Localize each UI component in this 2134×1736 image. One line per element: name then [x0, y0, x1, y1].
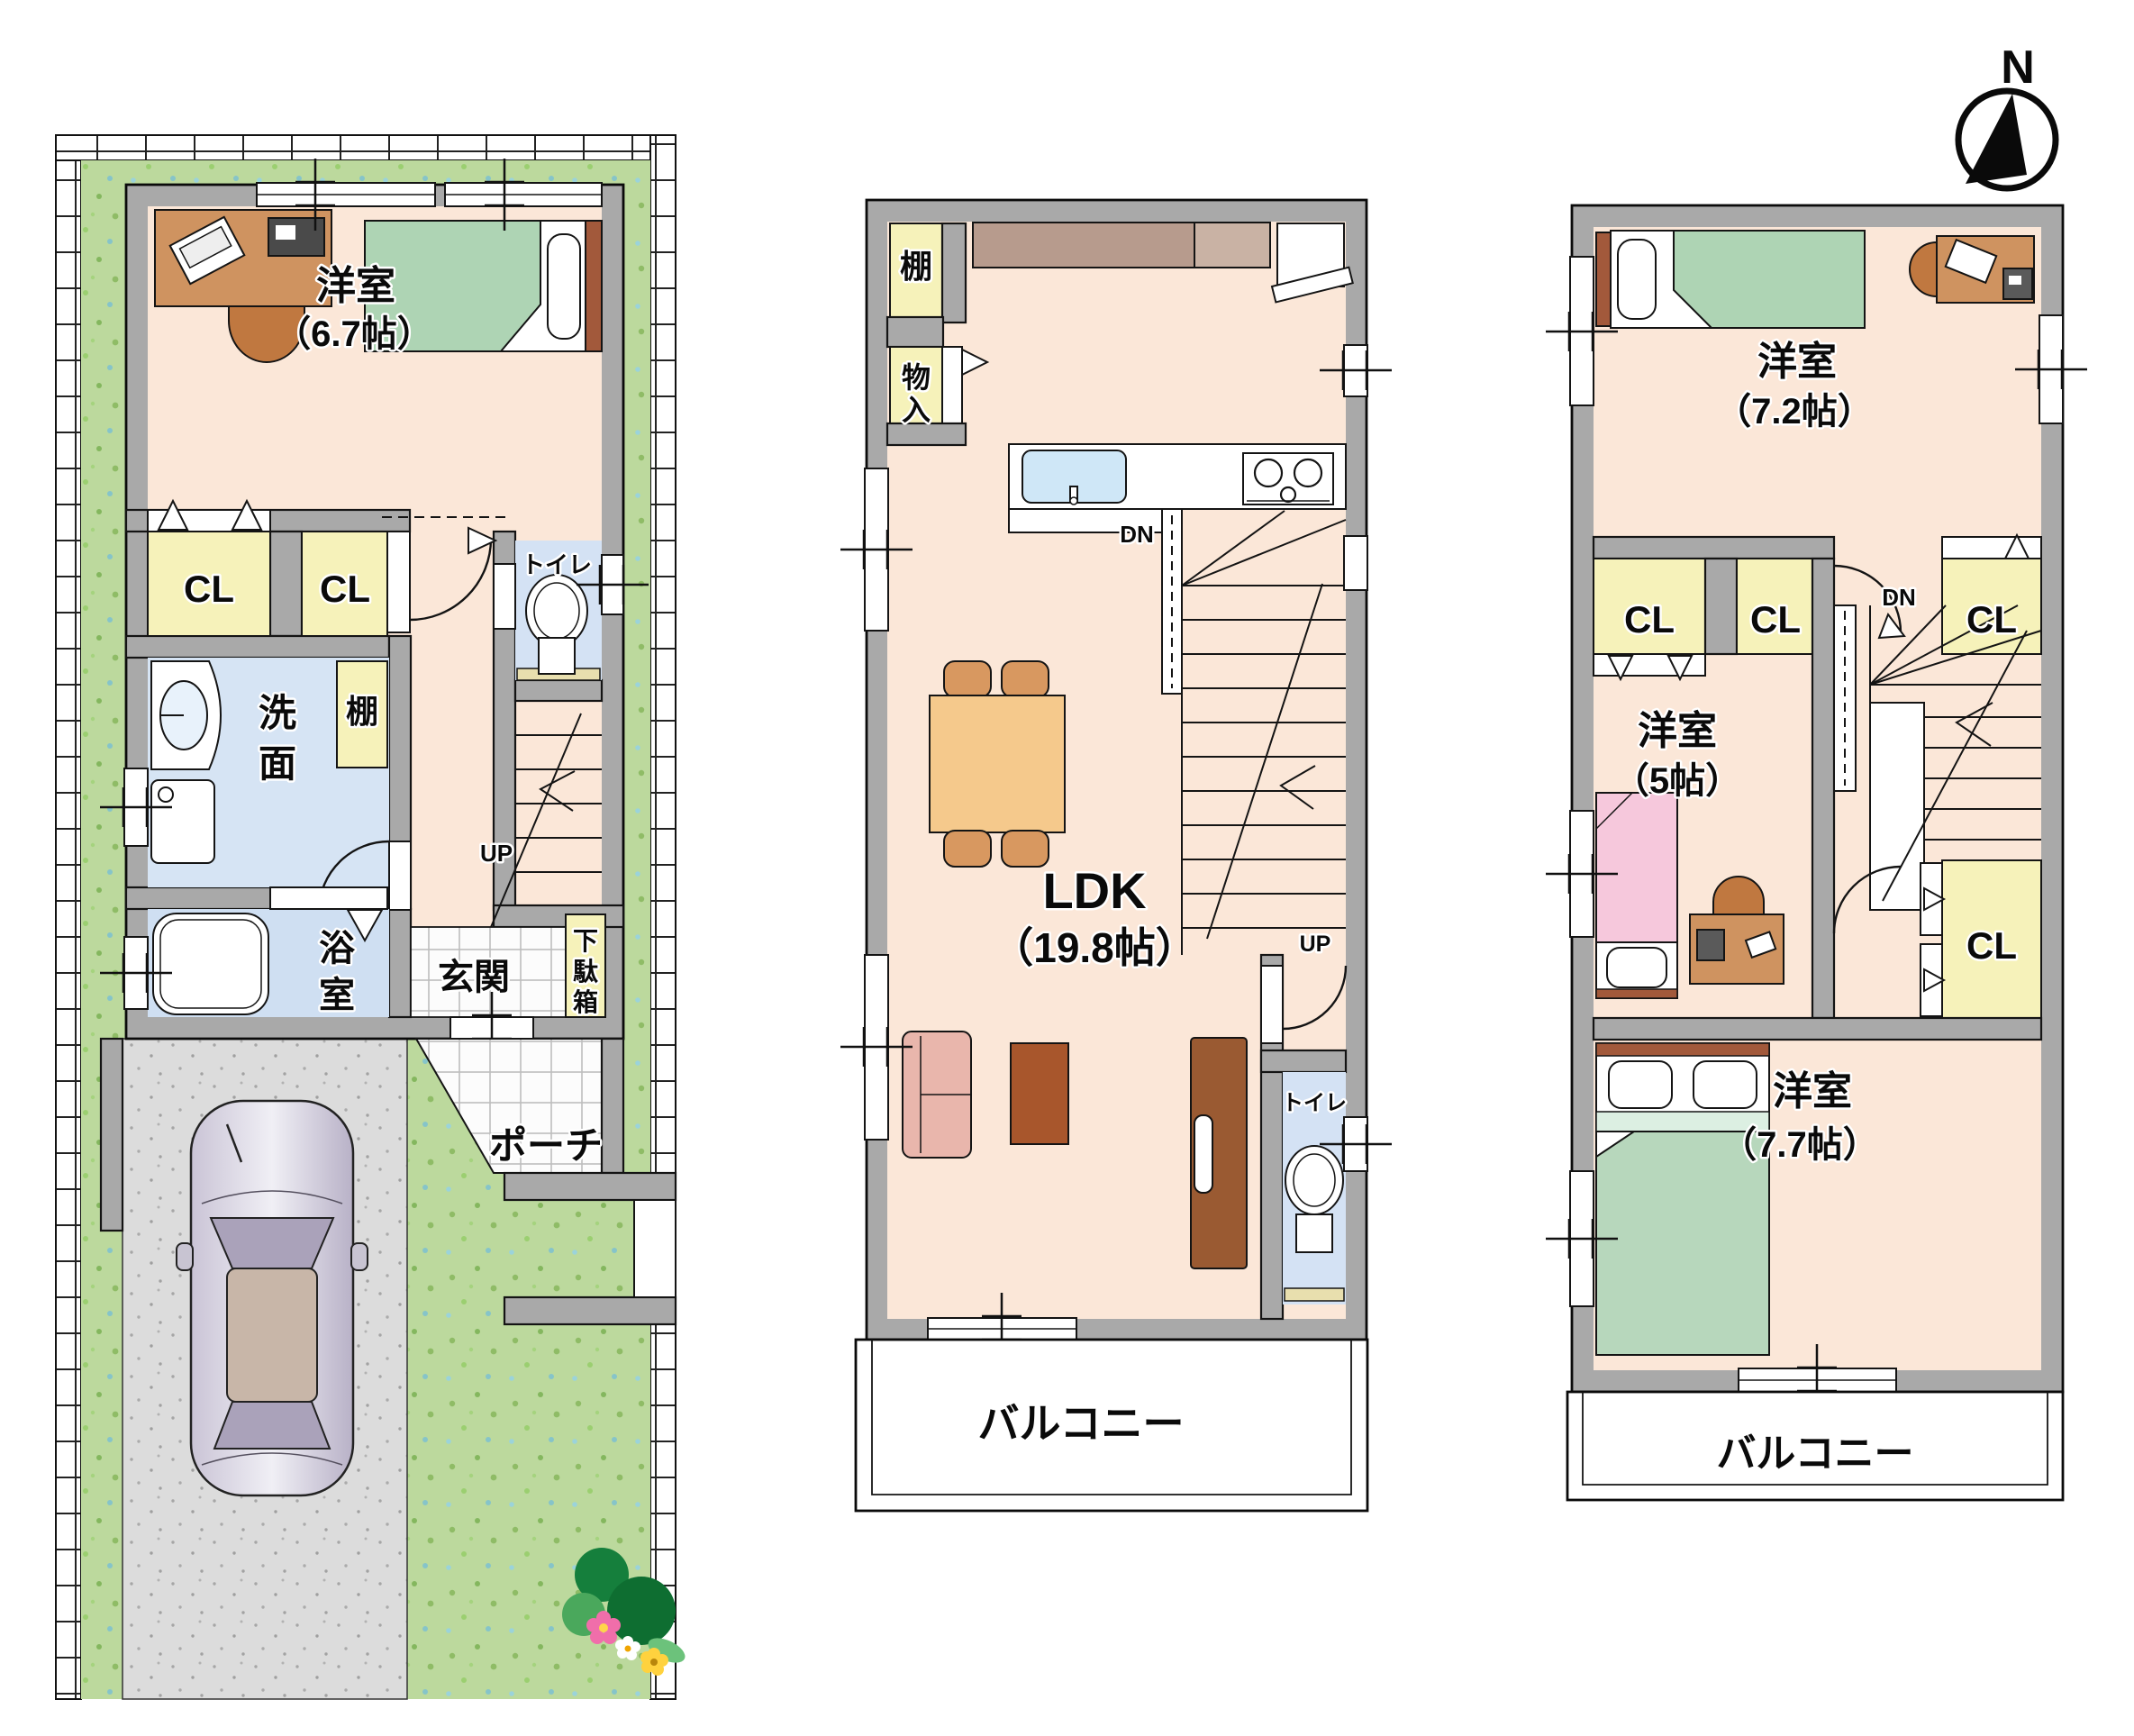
- sideboard-right: [1194, 223, 1270, 268]
- washroom-label: 面: [259, 742, 296, 785]
- room-7-7-label: 洋室: [1773, 1068, 1852, 1113]
- shelf-label: 棚: [900, 248, 932, 285]
- storage-label: 入: [902, 394, 931, 426]
- laptop: [1697, 930, 1724, 960]
- bed-pillow: [1618, 240, 1656, 319]
- wall: [1812, 559, 1834, 1018]
- floorplan-drawing: 洋室 （6.7帖） CL CL トイレ 洗 面 棚 浴 室 玄関 下 駄 箱 ポ…: [0, 0, 2134, 1736]
- wall: [126, 636, 389, 658]
- balcony-label: バルコニー: [977, 1400, 1184, 1447]
- room-5-label: 洋室: [1638, 708, 1717, 753]
- compass-north-label: N: [2001, 41, 2035, 94]
- bath-door: [270, 887, 387, 909]
- car-roof: [227, 1268, 317, 1402]
- wall: [887, 423, 966, 445]
- car-windshield: [211, 1218, 333, 1268]
- floor2: 棚 物 入 DN LDK （19.8帖） UP トイレ バルコニー: [840, 200, 1392, 1511]
- entrance-label: 玄関: [438, 958, 510, 997]
- bed-pillow: [1609, 1061, 1672, 1108]
- stairs-dn-label: DN: [1882, 584, 1916, 611]
- room-7-2-label: 洋室: [1757, 339, 1837, 384]
- porch-label: ポーチ: [489, 1124, 603, 1167]
- storage-door: [942, 347, 962, 423]
- washroom-label: 洗: [259, 692, 296, 734]
- bed-blanket-pink: [1596, 793, 1677, 942]
- ldk-size: （19.8帖）: [992, 924, 1197, 971]
- bath-label: 浴: [319, 929, 356, 968]
- chair: [944, 831, 991, 867]
- door-gap: [494, 564, 515, 629]
- bed-headboard: [586, 221, 602, 351]
- bed-headboard: [1596, 232, 1611, 326]
- bedroom-7-7: [1596, 1043, 1769, 1355]
- room-6-7-label: 洋室: [316, 263, 395, 308]
- closet-label: CL: [1966, 924, 2017, 967]
- toilet-label: トイレ: [522, 551, 592, 578]
- room-6-7-size: （6.7帖）: [275, 314, 433, 354]
- door-gap: [389, 841, 411, 910]
- bed-pillow: [548, 234, 580, 339]
- wall: [1594, 1018, 2041, 1040]
- bed-headboard: [1596, 1043, 1769, 1056]
- garden-wall-lower: [504, 1297, 676, 1324]
- chair: [1002, 661, 1049, 697]
- car-mirror-right: [351, 1243, 368, 1270]
- wall: [515, 680, 602, 701]
- wall: [1594, 537, 1834, 559]
- closet-label: CL: [1750, 598, 1801, 641]
- floor3: 洋室 （7.2帖） CL CL CL DN 洋室 （5帖） CL 洋室 （7.7…: [1546, 205, 2087, 1500]
- kitchen-counter-return: [1009, 509, 1180, 532]
- balcony-label: バルコニー: [1716, 1432, 1913, 1476]
- shoebox-label: 駄: [573, 958, 598, 986]
- shoebox-label: 箱: [573, 987, 598, 1016]
- floorplan-page: 洋室 （6.7帖） CL CL トイレ 洗 面 棚 浴 室 玄関 下 駄 箱 ポ…: [0, 0, 2134, 1736]
- bed-pillow: [1694, 1061, 1757, 1108]
- wall: [942, 223, 966, 323]
- brick-border-right: [650, 135, 676, 1699]
- bed-blanket: [1596, 1132, 1769, 1355]
- car-rear-window: [214, 1402, 330, 1449]
- bathtub: [153, 913, 268, 1014]
- bath-label: 室: [319, 976, 355, 1015]
- wall: [1261, 1050, 1346, 1072]
- shoebox-label: 下: [573, 927, 598, 955]
- closet-label: CL: [1624, 598, 1675, 641]
- toilet-tank: [1296, 1214, 1332, 1252]
- washing-machine-dial: [159, 787, 173, 802]
- closet-label: CL: [184, 568, 234, 610]
- toilet-label: トイレ: [1282, 1091, 1347, 1115]
- ldk-label: LDK: [1042, 862, 1146, 919]
- porch-wall: [602, 1039, 623, 1173]
- toilet-tank: [539, 638, 575, 674]
- sideboard: [973, 223, 1194, 268]
- room-5-size: （5帖）: [1613, 761, 1741, 801]
- garden-wall-upper: [504, 1173, 676, 1200]
- driveway-side-wall: [101, 1039, 123, 1231]
- monitor-screen: [276, 225, 295, 240]
- closet-label: CL: [320, 568, 370, 610]
- toilet-step: [1285, 1288, 1344, 1301]
- stair-landing: [1870, 703, 1924, 910]
- shelf-label: 棚: [346, 693, 378, 730]
- tv: [1194, 1115, 1212, 1193]
- dining-table: [930, 695, 1065, 832]
- brick-border-left: [56, 135, 81, 1699]
- site-and-floor1: 洋室 （6.7帖） CL CL トイレ 洗 面 棚 浴 室 玄関 下 駄 箱 ポ…: [56, 135, 689, 1699]
- window: [1344, 536, 1367, 590]
- compass: N: [1958, 41, 2056, 188]
- closet-label: CL: [1966, 598, 2017, 641]
- bed-blanket: [1674, 231, 1865, 328]
- stairs-dn-label: DN: [1120, 521, 1154, 548]
- storage-label: 物: [902, 361, 931, 394]
- garden-gate: [634, 1200, 676, 1297]
- room-7-2-size: （7.2帖）: [1715, 392, 1874, 432]
- wall: [270, 532, 302, 636]
- room-7-7-size: （7.7帖）: [1721, 1125, 1879, 1165]
- bed-footboard: [1596, 989, 1677, 998]
- door-gap: [1261, 966, 1283, 1043]
- wall: [887, 317, 943, 347]
- chair: [1002, 831, 1049, 867]
- brick-border-top: [56, 135, 650, 160]
- stairs-up-label: UP: [1300, 932, 1331, 957]
- chair: [944, 661, 991, 697]
- wall: [389, 909, 411, 1017]
- car: [177, 1101, 368, 1495]
- bed-pillow: [1607, 948, 1666, 987]
- door-leaf: [387, 532, 410, 632]
- car-mirror-left: [177, 1243, 193, 1270]
- stairs-up-label: UP: [480, 840, 513, 867]
- coffee-table: [1011, 1043, 1068, 1144]
- vanity-sink: [151, 661, 221, 769]
- wall: [1705, 559, 1737, 654]
